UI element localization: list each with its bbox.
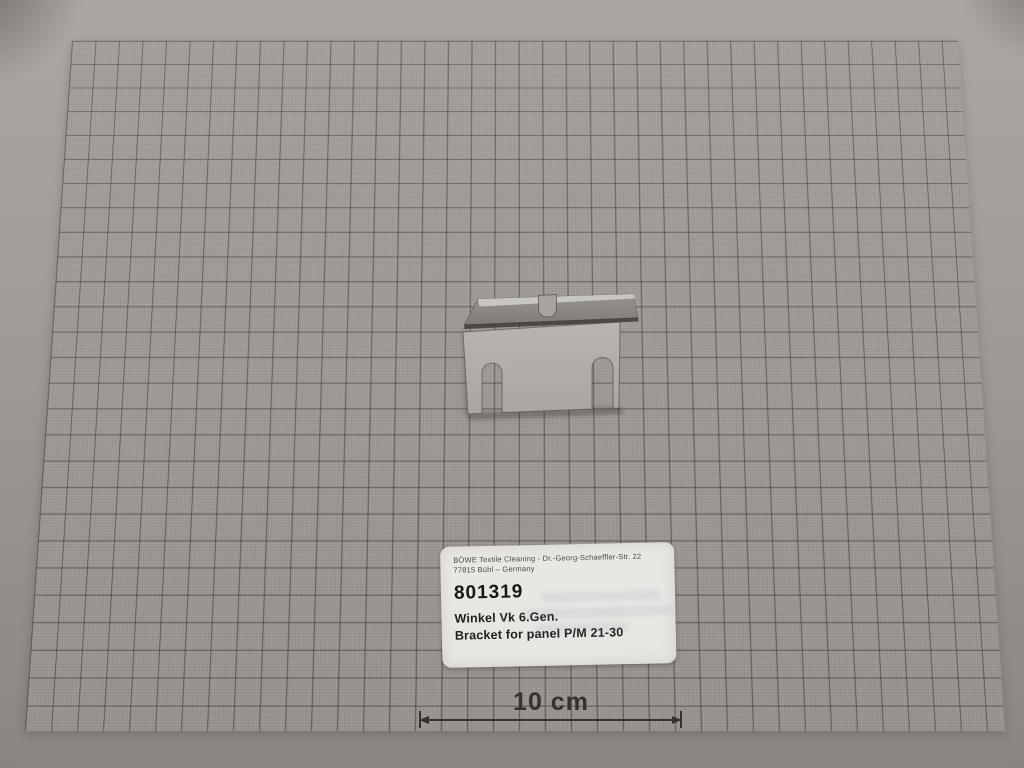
scale-arrow-line xyxy=(423,719,679,721)
bracket-notch xyxy=(539,295,557,318)
photo-scene: BÖWE Textile Cleaning - Dr.-Georg-Schaef… xyxy=(0,0,1024,768)
part-label: BÖWE Textile Cleaning - Dr.-Georg-Schaef… xyxy=(440,542,676,668)
bracket-face xyxy=(463,322,620,414)
scale-label: 10 cm xyxy=(420,688,682,717)
scale-end-tick-right xyxy=(680,711,682,728)
bracket-part xyxy=(452,286,652,426)
